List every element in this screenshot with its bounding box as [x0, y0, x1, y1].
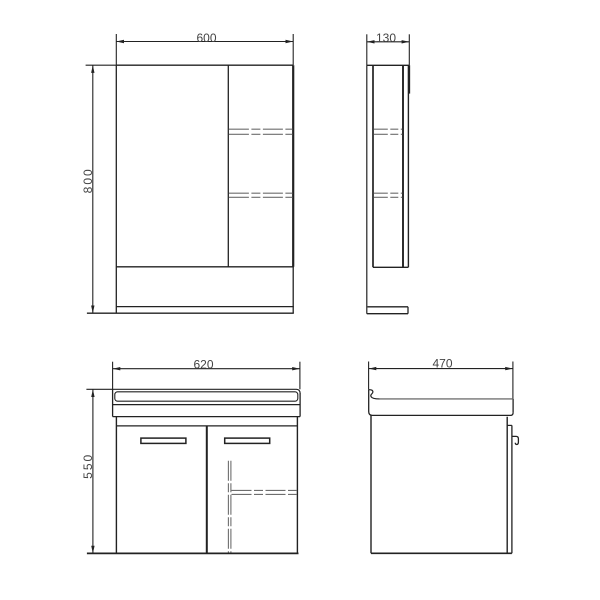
- svg-text:620: 620: [193, 358, 213, 372]
- svg-text:600: 600: [196, 31, 216, 45]
- svg-text:130: 130: [376, 31, 396, 45]
- svg-text:470: 470: [432, 356, 452, 370]
- svg-text:800: 800: [81, 167, 95, 193]
- svg-text:550: 550: [81, 453, 95, 479]
